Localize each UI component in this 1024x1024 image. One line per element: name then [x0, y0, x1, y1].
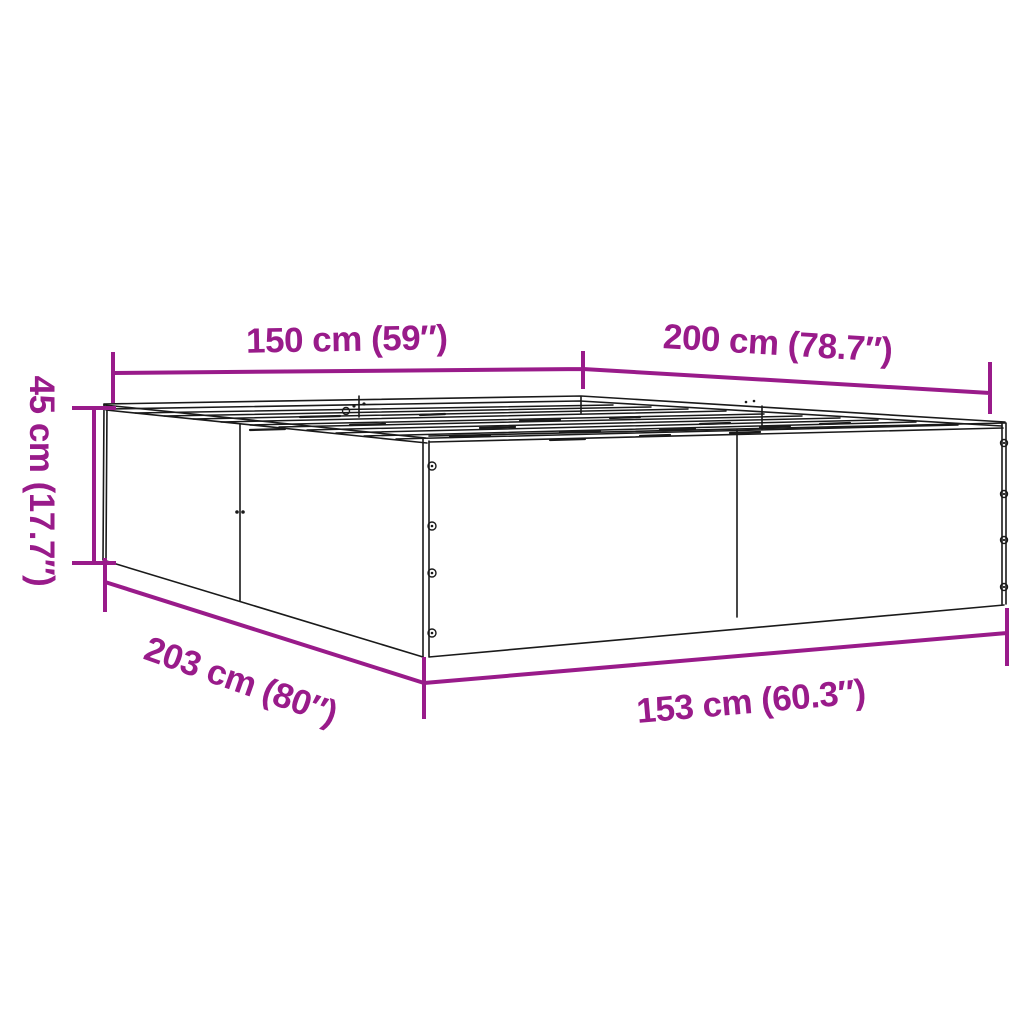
- dim-line-outer-width: [424, 608, 1007, 683]
- dim-line-height: [72, 408, 116, 563]
- front-panel: [423, 423, 1006, 657]
- bed-frame-drawing: [103, 396, 1008, 657]
- dim-label-height: 45 cm (17.7″): [22, 376, 61, 587]
- bed-frame-diagram: 150 cm (59″) 200 cm (78.7″) 45 cm (17.7″…: [0, 0, 1024, 1024]
- dim-label-top-width: 150 cm (59″): [246, 318, 448, 361]
- dim-label-outer-width: 153 cm (60.3″): [635, 672, 867, 731]
- bed-slats: [135, 405, 958, 440]
- dim-line-top-length: [583, 362, 990, 414]
- left-panel: [103, 404, 423, 657]
- dim-label-outer-length: 203 cm (80″): [139, 629, 342, 733]
- screw-icon: [343, 408, 350, 415]
- dim-label-top-length: 200 cm (78.7″): [662, 317, 894, 370]
- product-dimension-image: 150 cm (59″) 200 cm (78.7″) 45 cm (17.7″…: [0, 0, 1024, 1024]
